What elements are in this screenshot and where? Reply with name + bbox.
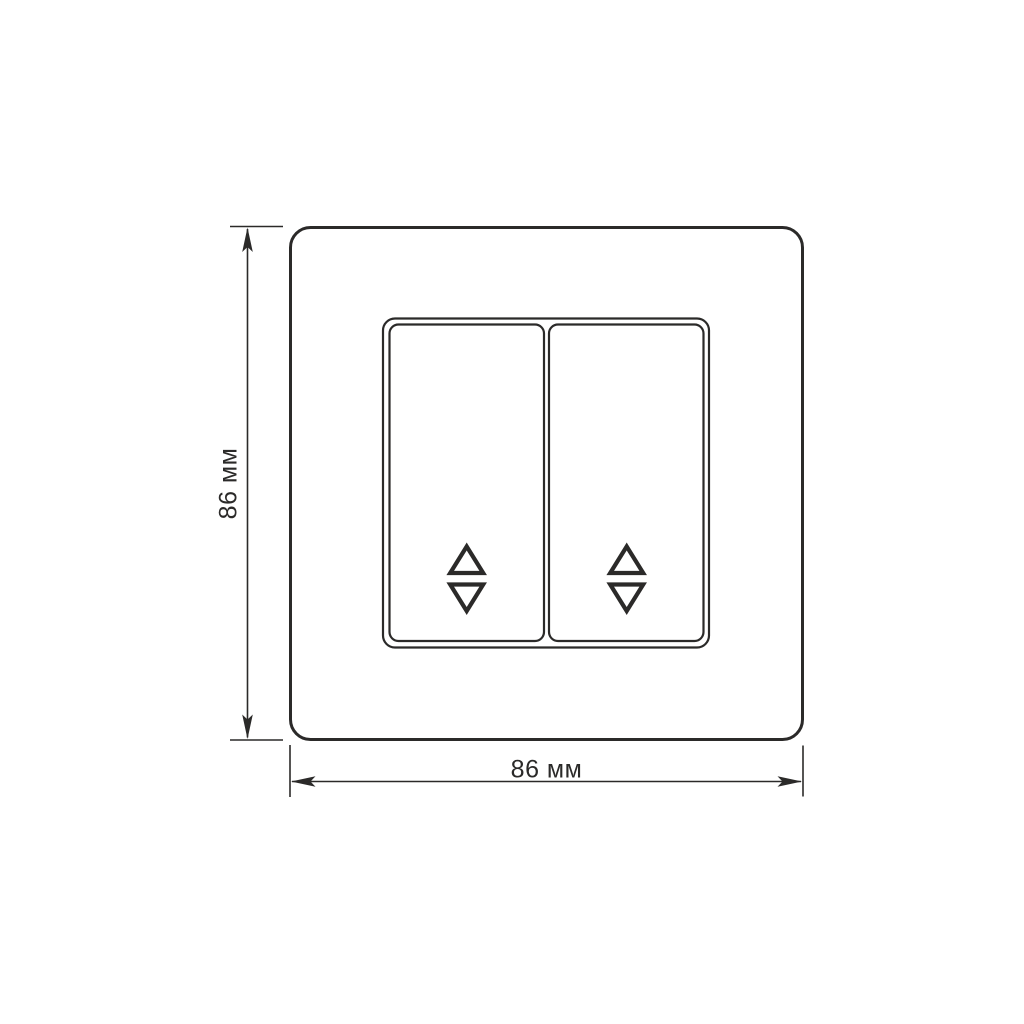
right-rocker-button <box>549 325 704 642</box>
diagram-canvas: 86 мм 86 мм <box>0 0 1024 1024</box>
height-dimension: 86 мм <box>215 227 284 741</box>
drawing-root: 86 мм 86 мм <box>215 227 804 798</box>
width-dimension-label: 86 мм <box>511 756 583 784</box>
width-dimension: 86 мм <box>290 745 803 797</box>
left-rocker-button <box>390 325 545 642</box>
switch-dimension-diagram: 86 мм 86 мм <box>0 0 1024 1024</box>
height-dimension-label: 86 мм <box>215 448 243 520</box>
